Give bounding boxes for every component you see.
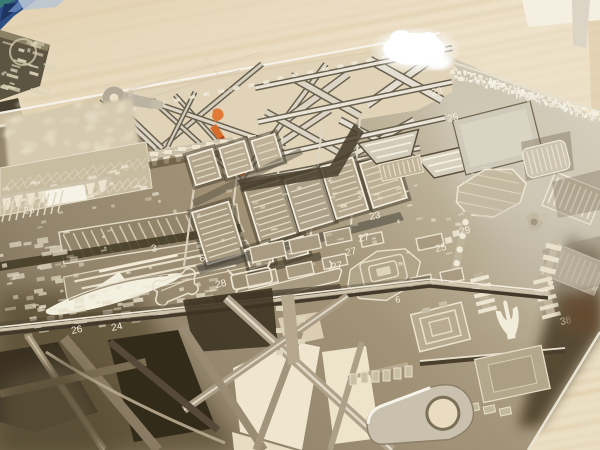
svg-text:26: 26 bbox=[23, 204, 36, 217]
